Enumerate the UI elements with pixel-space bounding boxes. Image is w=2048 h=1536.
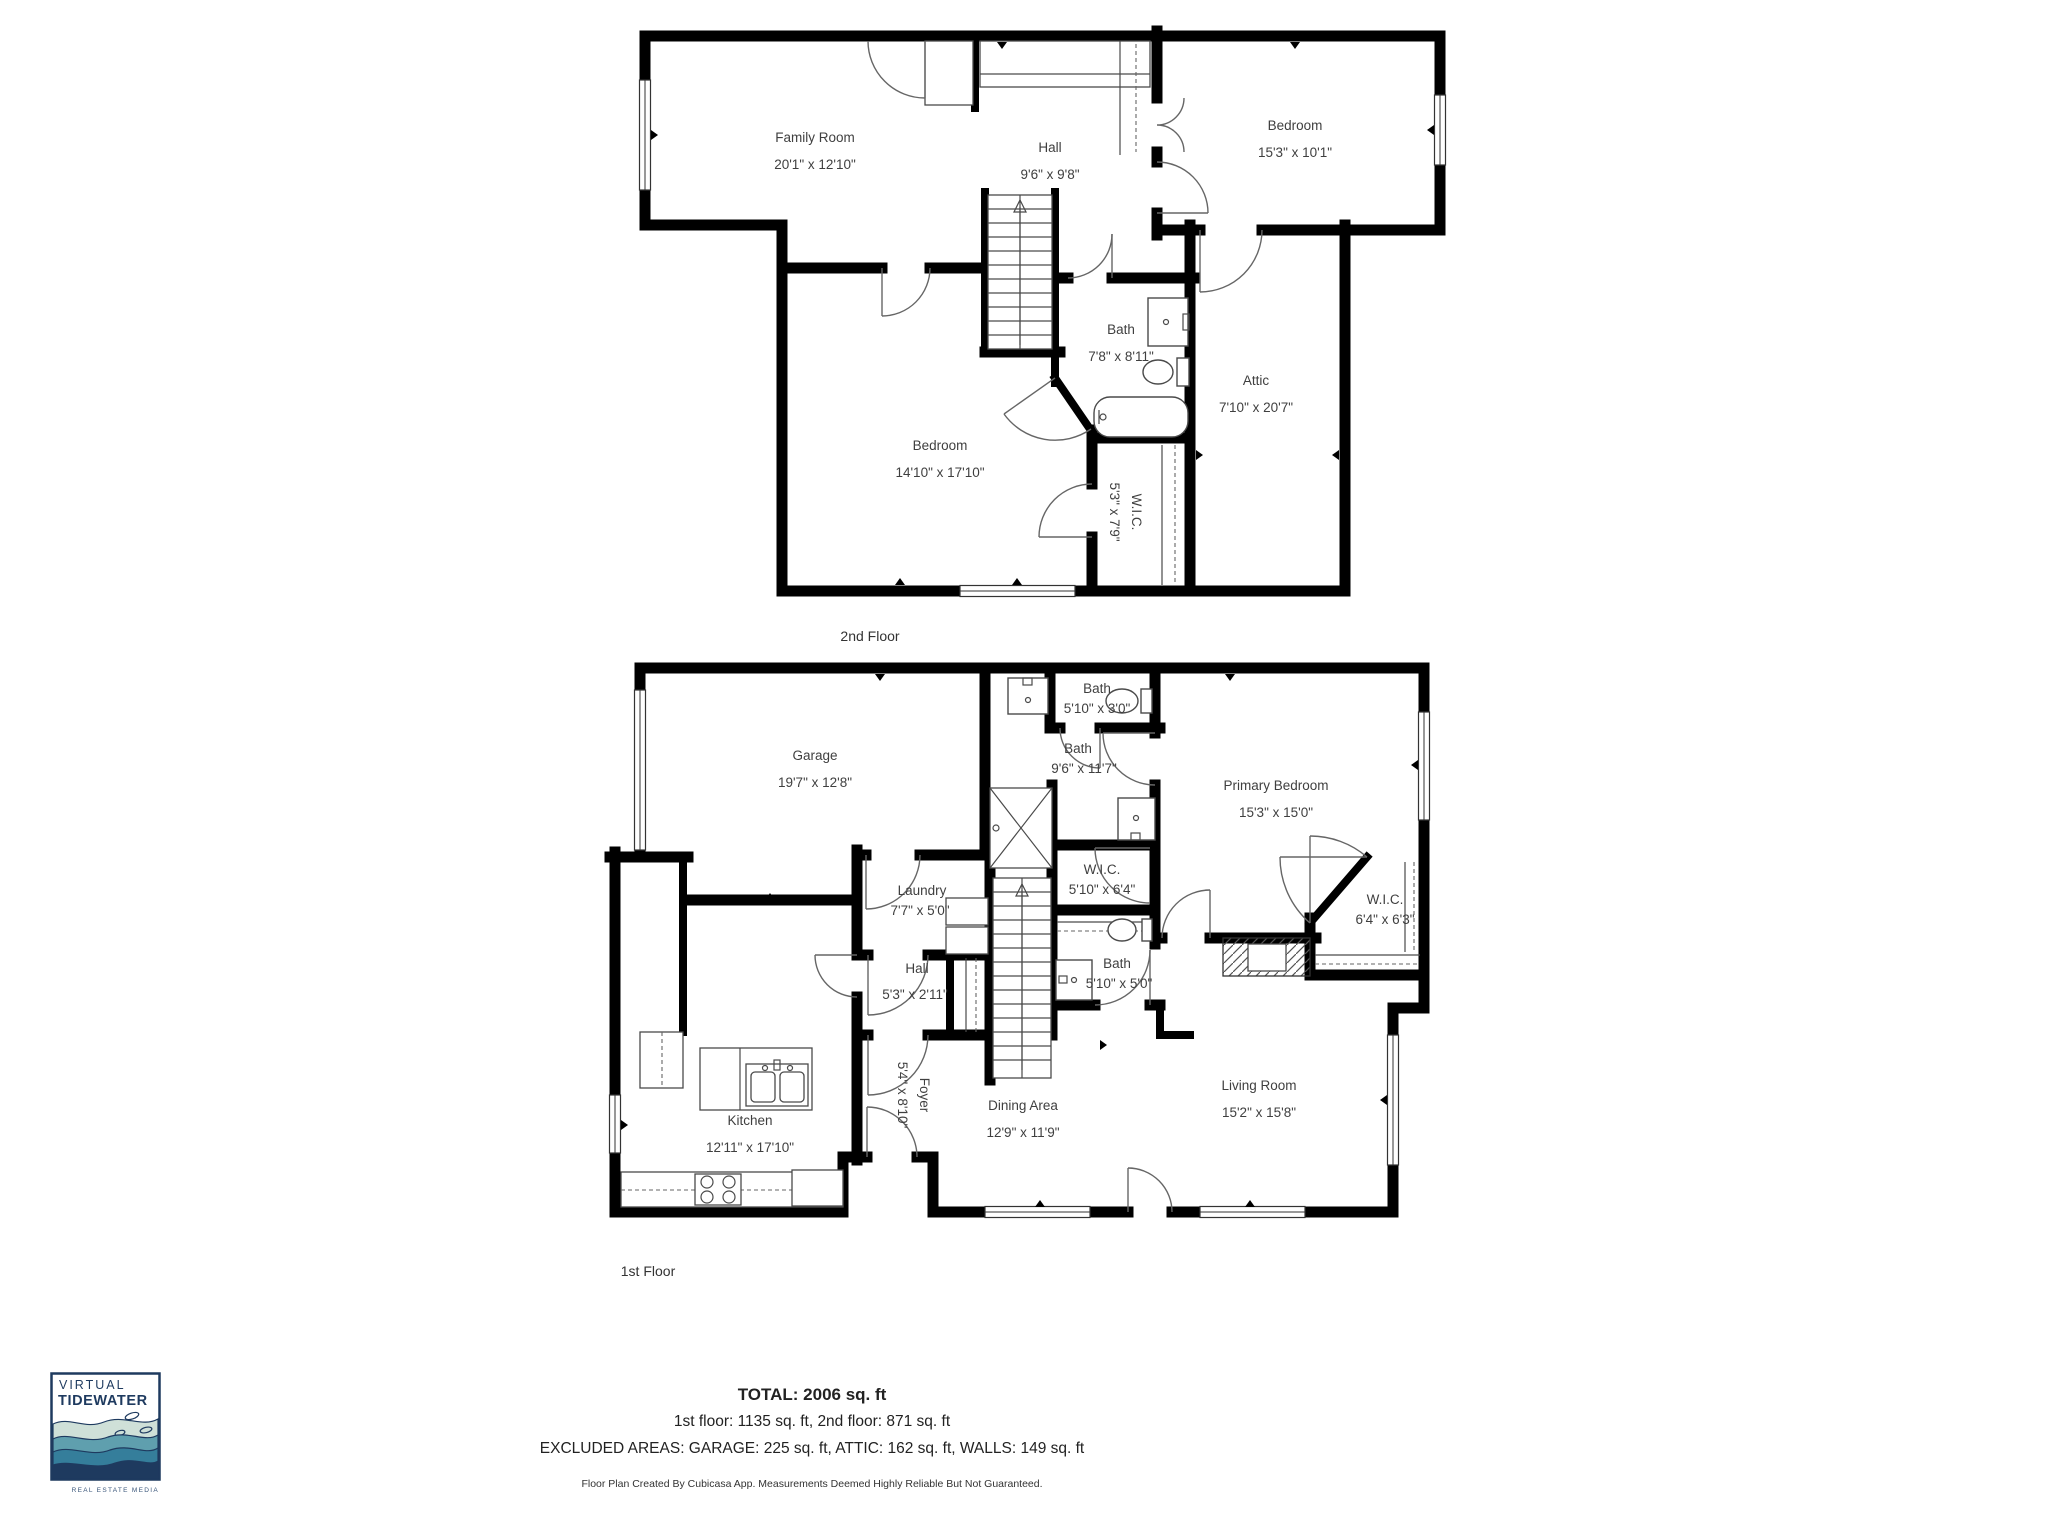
wic-hall-name: W.I.C. (1084, 862, 1121, 877)
bathtub-icon (1094, 397, 1188, 437)
room-label-primary-bedroom: Primary Bedroom 15'3" x 15'0" (1223, 778, 1328, 820)
staircase-1f (993, 878, 1051, 1078)
room-label-family-room: Family Room 20'1" x 12'10" (774, 130, 856, 172)
room-label-hall-2f: Hall 9'6" x 9'8" (1020, 140, 1079, 182)
wic-hall-dims: 5'10" x 6'4" (1069, 882, 1136, 897)
sink-icon (1118, 798, 1155, 840)
fridge-symbol (792, 1170, 843, 1206)
bath-fixtures-2f (1094, 298, 1189, 437)
bedroom-main-name: Bedroom (913, 438, 968, 453)
disclaimer-text: Floor Plan Created By Cubicasa App. Meas… (312, 1478, 1312, 1490)
kitchen-dims: 12'11" x 17'10" (706, 1140, 794, 1155)
room-label-laundry: Laundry 7'7" x 5'0" (890, 883, 949, 918)
wic-primary-name: W.I.C. (1367, 892, 1404, 907)
room-label-bedroom-main: Bedroom 14'10" x 17'10" (895, 438, 984, 480)
logo-line1-text: VIRTUAL (59, 1378, 126, 1392)
dining-dims: 12'9" x 11'9" (986, 1125, 1059, 1140)
first-floor-caption: 1st Floor (621, 1263, 676, 1279)
fireplace-symbol (1223, 938, 1310, 976)
living-name: Living Room (1221, 1078, 1296, 1093)
kitchen-island (700, 1048, 812, 1110)
area-summary: TOTAL: 2006 sq. ft 1st floor: 1135 sq. f… (312, 1382, 1312, 1490)
room-label-bath-primary: Bath 9'6" x 11'7" (1051, 741, 1117, 776)
bath-primary-name: Bath (1064, 741, 1092, 756)
sink-icon (1008, 678, 1048, 714)
room-label-bedroom-right: Bedroom 15'3" x 10'1" (1258, 118, 1332, 160)
family-room-name: Family Room (775, 130, 855, 145)
wic-2f-name: W.I.C. (1129, 494, 1144, 531)
bath-2f-name: Bath (1107, 322, 1135, 337)
kitchen-name: Kitchen (727, 1113, 772, 1128)
laundry-name: Laundry (898, 883, 947, 898)
logo-line2-text: TIDEWATER (58, 1393, 148, 1409)
room-label-kitchen: Kitchen 12'11" x 17'10" (706, 1113, 794, 1155)
hall-1f-dims: 5'3" x 2'11" (882, 987, 948, 1002)
room-label-hall-1f: Hall 5'3" x 2'11" (882, 961, 948, 1002)
wic-primary-dims: 6'4" x 6'3" (1355, 912, 1414, 927)
wic-2f-dims: 5'3" x 7'9" (1107, 482, 1122, 541)
sink-icon (1148, 298, 1189, 346)
room-label-dining: Dining Area 12'9" x 11'9" (986, 1098, 1059, 1140)
bath-2f-dims: 7'8" x 8'11" (1088, 349, 1154, 364)
room-label-wic-primary: W.I.C. 6'4" x 6'3" (1355, 892, 1414, 927)
bath-hall-dims: 5'10" x 5'0" (1086, 976, 1153, 991)
logo-tagline-text: REAL ESTATE MEDIA (72, 1487, 159, 1494)
garage-name: Garage (792, 748, 837, 763)
laundry-appliances (946, 898, 988, 954)
room-label-garage: Garage 19'7" x 12'8" (778, 748, 852, 790)
bedroom-right-name: Bedroom (1268, 118, 1323, 133)
staircase-2f (988, 195, 1052, 349)
shower-symbol (990, 788, 1052, 868)
total-area-text: TOTAL: 2006 sq. ft (312, 1382, 1312, 1408)
excluded-areas-text: EXCLUDED AREAS: GARAGE: 225 sq. ft, ATTI… (312, 1435, 1312, 1462)
second-floor-caption: 2nd Floor (840, 628, 899, 644)
dining-name: Dining Area (988, 1098, 1058, 1113)
room-label-attic: Attic 7'10" x 20'7" (1219, 373, 1293, 415)
garage-dims: 19'7" x 12'8" (778, 775, 852, 790)
hall-2f-dims: 9'6" x 9'8" (1020, 167, 1079, 182)
room-label-wic-hall: W.I.C. 5'10" x 6'4" (1069, 862, 1136, 897)
bath-small-name: Bath (1083, 681, 1111, 696)
logo-graphic: VIRTUAL TIDEWATER REAL ESTATE MEDIA (50, 1372, 162, 1500)
primary-bedroom-dims: 15'3" x 15'0" (1239, 805, 1313, 820)
bath-small-dims: 5'10" x 3'0" (1064, 701, 1131, 716)
family-room-dims: 20'1" x 12'10" (774, 157, 856, 172)
primary-bedroom-name: Primary Bedroom (1223, 778, 1328, 793)
stove-icon (695, 1174, 741, 1205)
virtual-tidewater-logo: VIRTUAL TIDEWATER REAL ESTATE MEDIA (50, 1372, 162, 1505)
foyer-dims: 5'4" x 8'10" (895, 1062, 910, 1129)
living-dims: 15'2" x 15'8" (1222, 1105, 1296, 1120)
floor-areas-text: 1st floor: 1135 sq. ft, 2nd floor: 871 s… (312, 1408, 1312, 1435)
door-arcs-2f (868, 41, 1262, 537)
room-label-bath-2f: Bath 7'8" x 8'11" (1088, 322, 1154, 364)
attic-name: Attic (1243, 373, 1270, 388)
hall-1f-name: Hall (905, 961, 928, 976)
hall-2f-name: Hall (1038, 140, 1061, 155)
double-sink-icon (746, 1060, 808, 1106)
laundry-dims: 7'7" x 5'0" (890, 903, 949, 918)
bath-primary-dims: 9'6" x 11'7" (1051, 761, 1117, 776)
second-floor-plan: Family Room 20'1" x 12'10" Hall 9'6" x 9… (640, 31, 1446, 644)
foyer-name: Foyer (917, 1078, 932, 1113)
floor-plan-canvas: Family Room 20'1" x 12'10" Hall 9'6" x 9… (0, 0, 2048, 1536)
first-floor-plan: Garage 19'7" x 12'8" Bath 5'10" x 3'0" B… (610, 668, 1430, 1279)
bedroom-main-dims: 14'10" x 17'10" (895, 465, 984, 480)
room-label-foyer: Foyer 5'4" x 8'10" (895, 1062, 932, 1129)
toilet-icon (1108, 919, 1152, 941)
room-label-living: Living Room 15'2" x 15'8" (1221, 1078, 1296, 1120)
room-label-bath-hall: Bath 5'10" x 5'0" (1086, 956, 1153, 991)
bath-hall-name: Bath (1103, 956, 1131, 971)
bedroom-right-dims: 15'3" x 10'1" (1258, 145, 1332, 160)
room-label-wic-2f: W.I.C. 5'3" x 7'9" (1107, 482, 1144, 541)
kitchen-counter (621, 1170, 843, 1207)
attic-dims: 7'10" x 20'7" (1219, 400, 1293, 415)
